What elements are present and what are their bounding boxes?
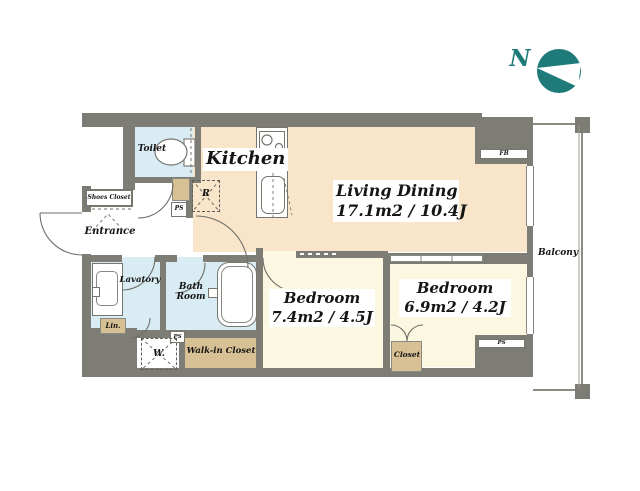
bedroom-second-label: Bedroom 6.9m2 / 4.2J — [396, 278, 514, 318]
toilet-label: Toilet — [134, 144, 170, 154]
pipe-space-1: PS — [171, 202, 187, 217]
wall-kitchen-bedroom — [256, 248, 263, 372]
linen-label: Lin. — [105, 322, 120, 330]
wall-bath-top — [203, 255, 263, 262]
kitchen-label: Kitchen — [203, 148, 288, 171]
vanity-knob — [92, 287, 100, 297]
ps-label: PS — [175, 206, 184, 213]
entrance-label: Entrance — [84, 226, 136, 238]
wall-lavatory-top-b — [155, 255, 177, 262]
balcony-label: Balcony — [536, 248, 580, 258]
washing-machine-label: W. — [147, 349, 171, 359]
lavatory-label: Lavatory — [114, 276, 166, 286]
linen-box: Lin. — [100, 318, 126, 334]
bath-label-line1: Bath — [171, 282, 211, 292]
bedroom-main-size: 7.4m2 / 4.5J — [269, 308, 375, 327]
wall-top — [82, 113, 482, 127]
ps-label: PS — [497, 340, 505, 346]
walk-in-closet-label: Walk-in Closet — [186, 347, 256, 357]
closet-label: Closet — [390, 351, 424, 360]
bath-label-line2: Room — [171, 292, 211, 302]
bedroom-main-name: Bedroom — [269, 289, 375, 308]
wall-lav-bath-divider — [160, 257, 166, 332]
fb-shaft: FB — [480, 149, 528, 159]
north-compass-icon — [537, 49, 581, 93]
pipe-space-3: PS — [478, 339, 525, 348]
kitchen-sink — [261, 176, 285, 214]
wall-bedroom-divider — [383, 253, 390, 377]
bathtub-inner — [221, 266, 253, 323]
living-dining-name: Living Dining — [336, 181, 456, 201]
shoes-closet-label: Shoes Closet — [87, 195, 130, 202]
bedroom-second-size: 6.9m2 / 4.2J — [399, 298, 511, 317]
fb-label: FB — [499, 151, 508, 158]
bedroom-second-name: Bedroom — [399, 279, 511, 298]
wall-balcony-bottom-block — [575, 384, 590, 399]
wall-bath-bottom — [137, 330, 263, 338]
sliding-partition — [390, 255, 483, 262]
shaft-box — [172, 178, 190, 201]
wall-toilet-right — [195, 120, 201, 183]
wall-lavatory-top-a — [91, 255, 122, 262]
balcony-glass-door-bedroom — [526, 277, 534, 334]
bath-room-label: Bath Room — [171, 282, 211, 303]
balcony-glass-door-living — [526, 166, 534, 226]
living-dining-label: Living Dining 17.1m2 / 10.4J — [333, 180, 459, 222]
wall-balcony-top-block — [575, 117, 590, 133]
bedroom-main-door-opening — [263, 251, 296, 258]
compass-north-label: N — [505, 46, 535, 72]
floor-plan: Shoes Closet PS Lin. PS PS FB — [0, 0, 640, 491]
bedroom-main-label: Bedroom 7.4m2 / 4.5J — [266, 288, 378, 328]
refrigerator-label: R — [196, 189, 216, 200]
entrance-door-arc — [40, 213, 82, 255]
living-dining-size: 17.1m2 / 10.4J — [336, 201, 456, 221]
shoes-closet-box: Shoes Closet — [85, 189, 133, 207]
